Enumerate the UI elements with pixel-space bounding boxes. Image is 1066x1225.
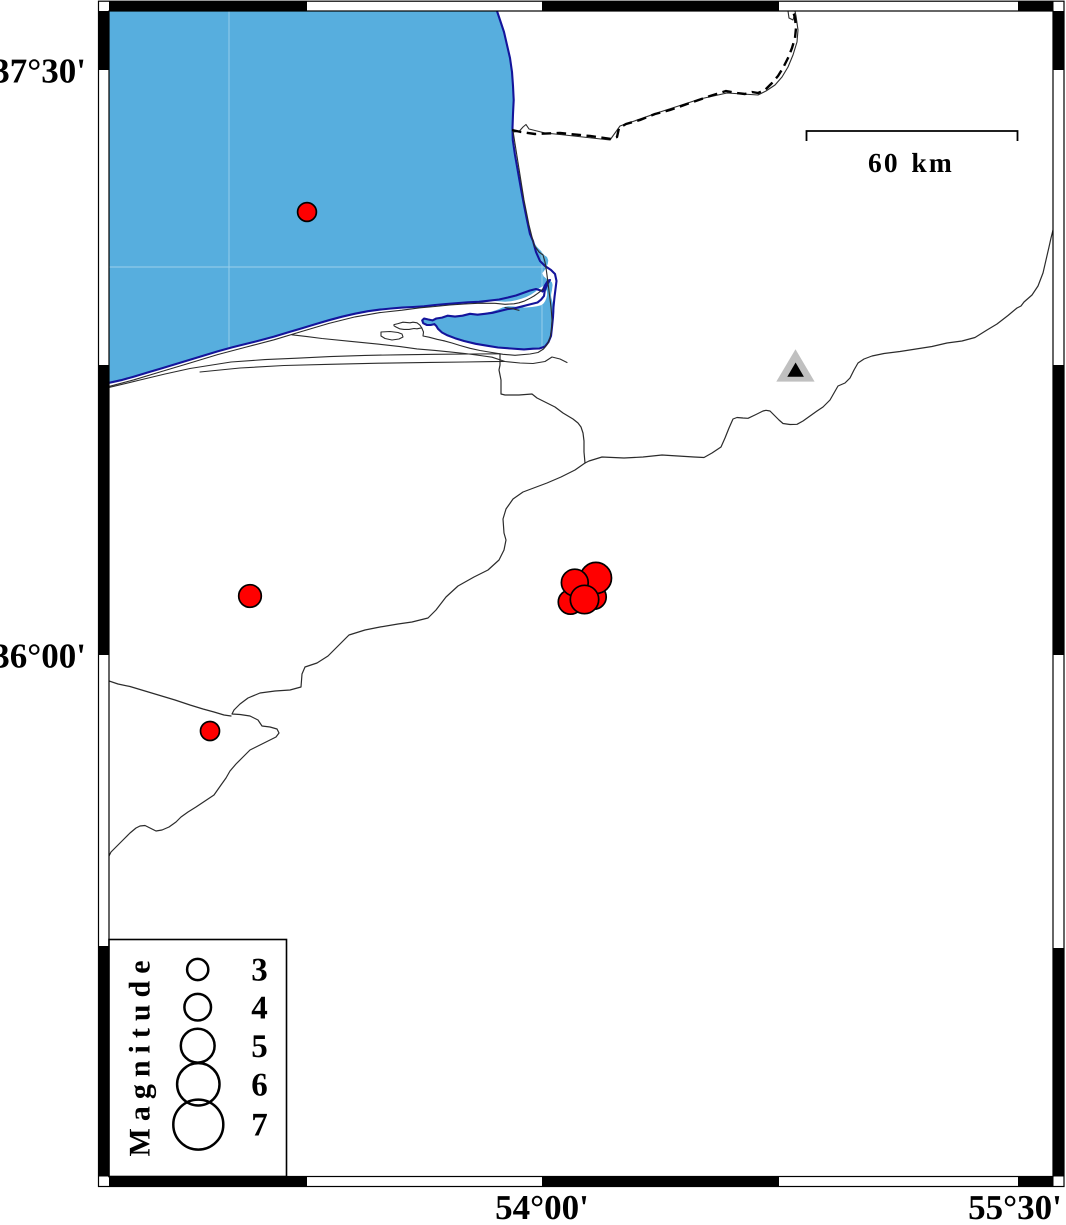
svg-text:6: 6 (251, 1067, 268, 1103)
svg-text:55°30': 55°30' (968, 1188, 1062, 1225)
svg-text:4: 4 (251, 990, 268, 1026)
svg-text:5: 5 (251, 1029, 268, 1065)
svg-text:Magnitude: Magnitude (124, 953, 157, 1156)
svg-text:36°00': 36°00' (0, 636, 86, 675)
svg-text:37°30': 37°30' (0, 51, 86, 90)
svg-text:54°00': 54°00' (495, 1188, 589, 1225)
svg-text:60 km: 60 km (868, 147, 954, 178)
svg-text:3: 3 (251, 953, 268, 989)
svg-text:7: 7 (251, 1108, 268, 1144)
